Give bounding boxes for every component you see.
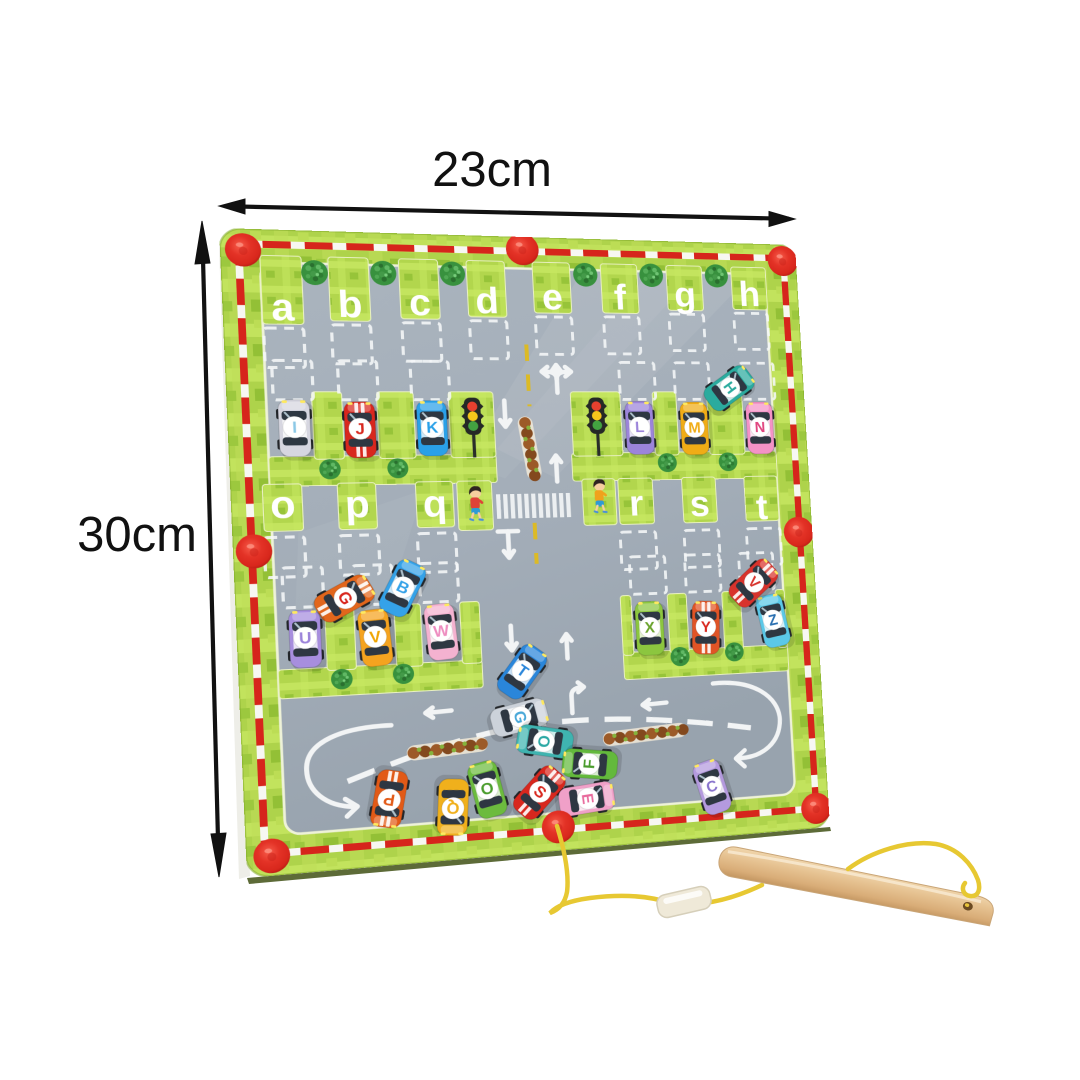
svg-text:23cm: 23cm — [432, 143, 552, 197]
svg-text:30cm: 30cm — [77, 508, 197, 562]
